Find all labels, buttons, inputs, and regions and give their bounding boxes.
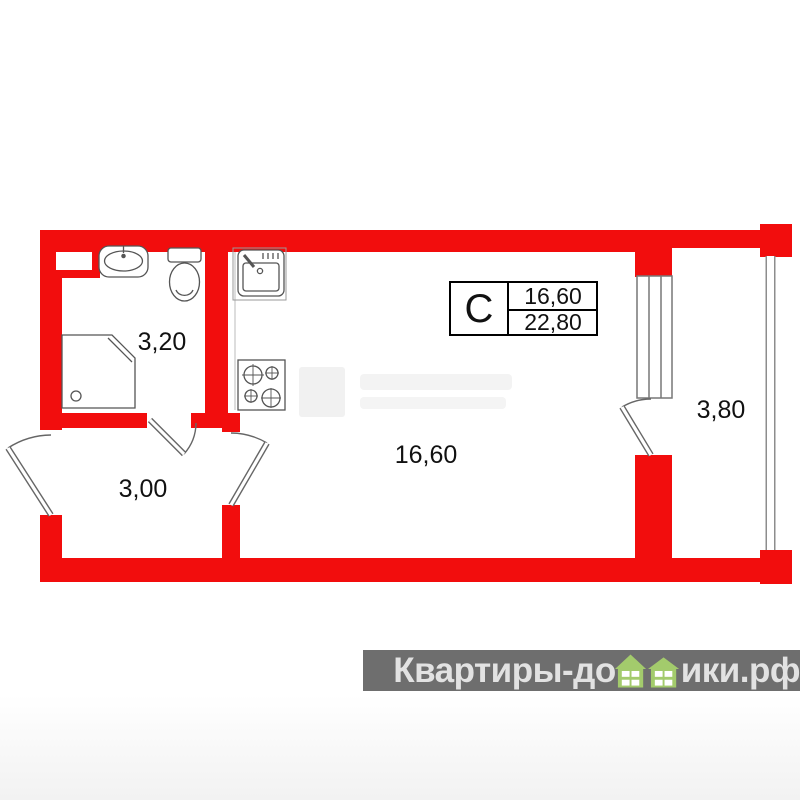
toilet-icon xyxy=(168,248,201,301)
brand-text-left: Квартиры-до xyxy=(393,650,615,691)
bathroom-area-label: 3,20 xyxy=(138,328,187,356)
pillar-balcony-upper xyxy=(635,230,672,277)
hallway-area-label: 3,00 xyxy=(119,475,168,503)
wall-bathroom-door-stub xyxy=(191,413,205,428)
entrance-door xyxy=(8,435,51,515)
brand-text-right: ики.рф xyxy=(681,650,800,691)
wall-room-door-bottom-stub xyxy=(222,505,240,558)
stove-icon xyxy=(238,360,285,410)
wall-niche xyxy=(56,252,100,278)
wall-bathroom-bottom xyxy=(62,413,147,428)
bathroom-door xyxy=(150,420,196,454)
wall-balcony-top-thin xyxy=(672,230,762,248)
pillar-balcony-lower xyxy=(635,455,672,565)
brand-bar: Квартиры-до ики.рф xyxy=(363,650,800,691)
balcony-door xyxy=(622,399,651,455)
center-watermark xyxy=(299,367,512,417)
living-room-area-label: 16,60 xyxy=(395,441,458,469)
pillar-bottom-right xyxy=(760,550,792,584)
washbasin-icon xyxy=(99,246,148,277)
floorplan-image: 3,20 3,00 16,60 3,80 С 16,60 22,80 Кварт… xyxy=(0,0,800,800)
window-room-balcony xyxy=(637,276,672,398)
wall-bathroom-right xyxy=(205,252,228,428)
room-door xyxy=(231,433,267,505)
kitchen-fixtures xyxy=(233,248,286,410)
wall-room-door-top-stub xyxy=(222,413,240,432)
shower-icon xyxy=(62,335,135,408)
apartment-type-label: С xyxy=(465,287,494,331)
total-area-value: 22,80 xyxy=(524,309,582,335)
balcony-area-label: 3,80 xyxy=(697,396,746,424)
kitchen-sink-icon xyxy=(233,248,286,300)
living-area-value: 16,60 xyxy=(524,283,582,309)
pillar-top-right xyxy=(760,224,792,257)
info-box: С 16,60 22,80 xyxy=(450,282,597,335)
houses-icon xyxy=(615,653,683,689)
